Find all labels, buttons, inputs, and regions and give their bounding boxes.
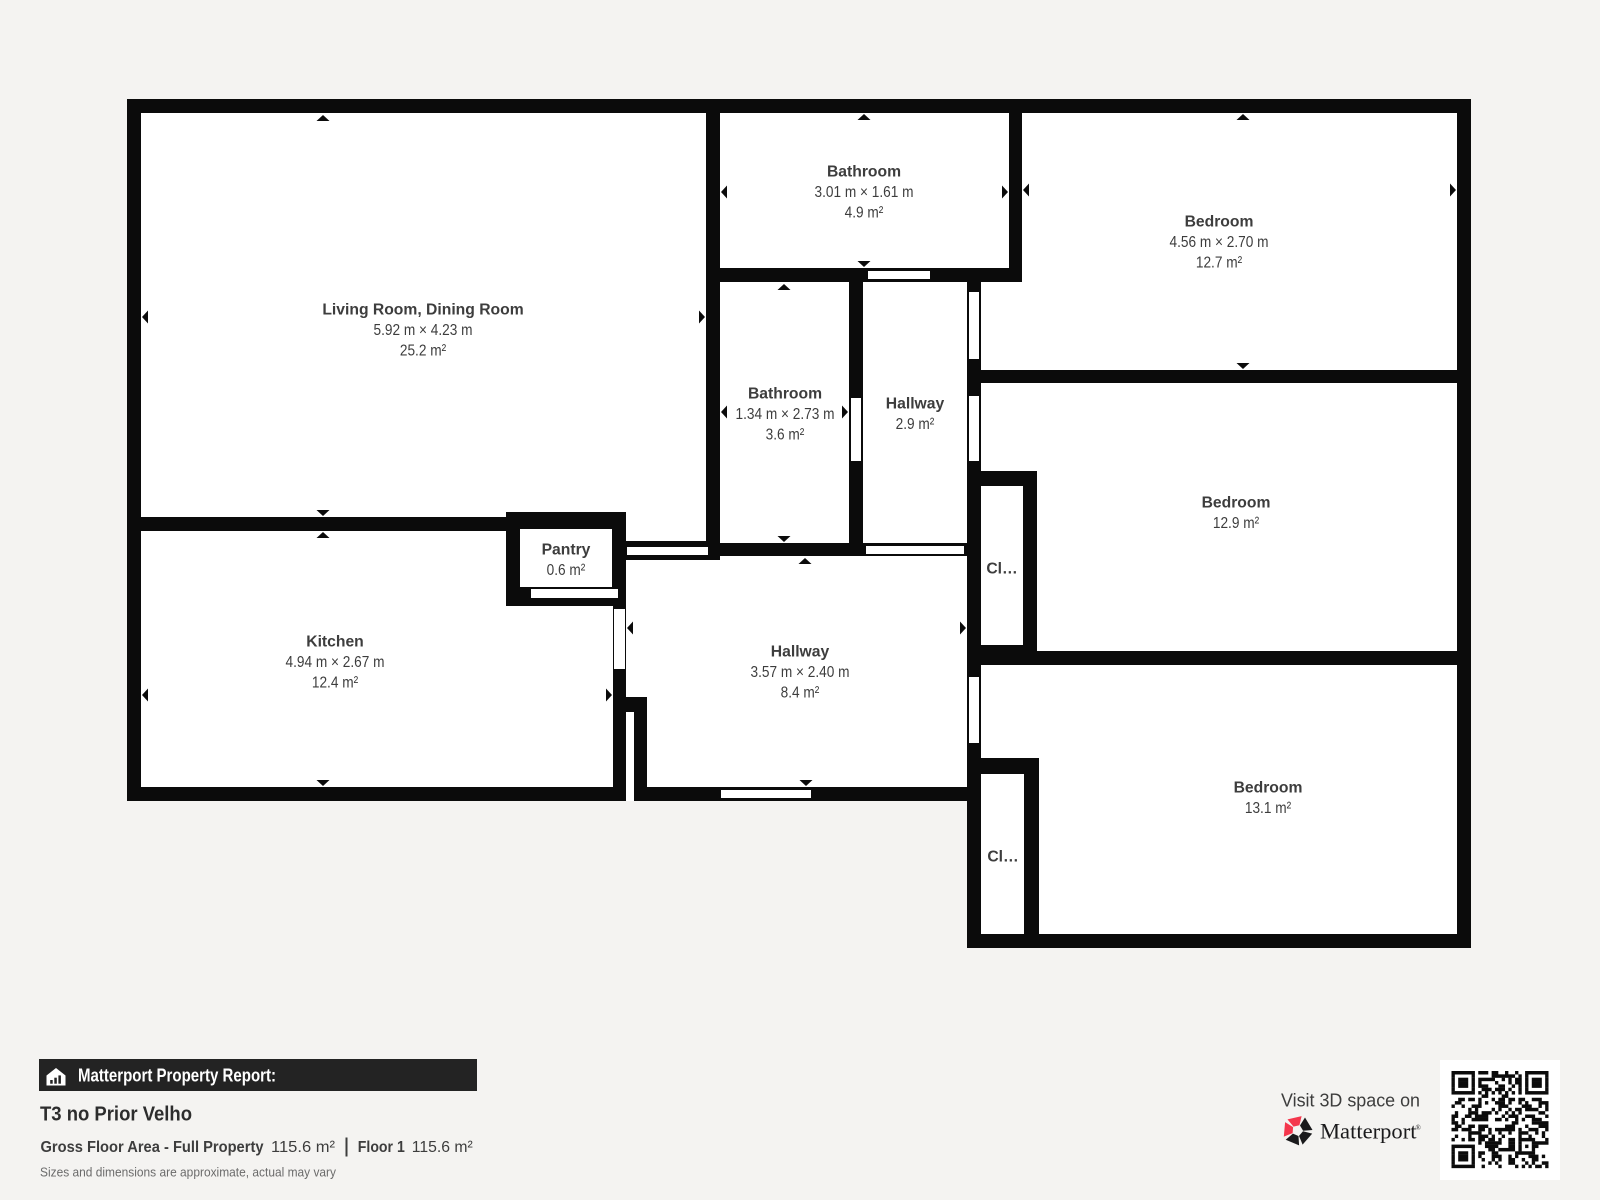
svg-text:Bedroom: Bedroom [1185, 214, 1254, 231]
svg-text:12.4 m²: 12.4 m² [312, 674, 358, 691]
svg-text:1.34 m × 2.73 m: 1.34 m × 2.73 m [736, 406, 835, 423]
svg-text:3.57 m × 2.40 m: 3.57 m × 2.40 m [751, 664, 850, 681]
svg-text:Matterport Property Report:: Matterport Property Report: [78, 1066, 276, 1086]
svg-text:Sizes and dimensions are appro: Sizes and dimensions are approximate, ac… [40, 1165, 336, 1180]
svg-text:Hallway: Hallway [886, 396, 945, 413]
svg-text:12.7 m²: 12.7 m² [1196, 254, 1242, 271]
svg-text:Visit 3D space on: Visit 3D space on [1281, 1090, 1420, 1111]
svg-text:Living Room, Dining Room: Living Room, Dining Room [322, 302, 523, 319]
svg-text:T3 no Prior Velho: T3 no Prior Velho [40, 1104, 192, 1126]
svg-text:Floor 1: Floor 1 [358, 1139, 405, 1156]
svg-text:Cl…: Cl… [986, 561, 1017, 578]
svg-text:Kitchen: Kitchen [306, 634, 364, 651]
svg-text:Gross Floor Area - Full Proper: Gross Floor Area - Full Property [41, 1139, 264, 1156]
svg-text:115.6 m²: 115.6 m² [271, 1139, 336, 1156]
svg-text:Hallway: Hallway [771, 644, 830, 661]
svg-text:3.6 m²: 3.6 m² [766, 426, 805, 443]
svg-text:Bathroom: Bathroom [748, 386, 822, 403]
svg-text:Bathroom: Bathroom [827, 164, 901, 181]
svg-text:25.2 m²: 25.2 m² [400, 342, 446, 359]
svg-text:12.9 m²: 12.9 m² [1213, 515, 1259, 532]
svg-text:Bedroom: Bedroom [1234, 780, 1303, 797]
svg-text:Matterport: Matterport [1320, 1119, 1417, 1144]
svg-text:0.6 m²: 0.6 m² [547, 562, 586, 579]
svg-text:13.1 m²: 13.1 m² [1245, 800, 1291, 817]
svg-text:5.92 m × 4.23 m: 5.92 m × 4.23 m [374, 322, 473, 339]
svg-text:3.01 m × 1.61 m: 3.01 m × 1.61 m [815, 184, 914, 201]
svg-text:®: ® [1416, 1124, 1422, 1132]
svg-text:2.9 m²: 2.9 m² [896, 416, 935, 433]
svg-text:4.9 m²: 4.9 m² [845, 204, 884, 221]
svg-text:Cl…: Cl… [987, 849, 1018, 866]
svg-text:115.6 m²: 115.6 m² [412, 1139, 474, 1156]
svg-text:8.4 m²: 8.4 m² [781, 684, 820, 701]
svg-text:Bedroom: Bedroom [1202, 495, 1271, 512]
svg-text:4.56 m × 2.70 m: 4.56 m × 2.70 m [1170, 234, 1269, 251]
svg-text:4.94 m × 2.67 m: 4.94 m × 2.67 m [286, 654, 385, 671]
svg-text:Pantry: Pantry [542, 542, 591, 559]
